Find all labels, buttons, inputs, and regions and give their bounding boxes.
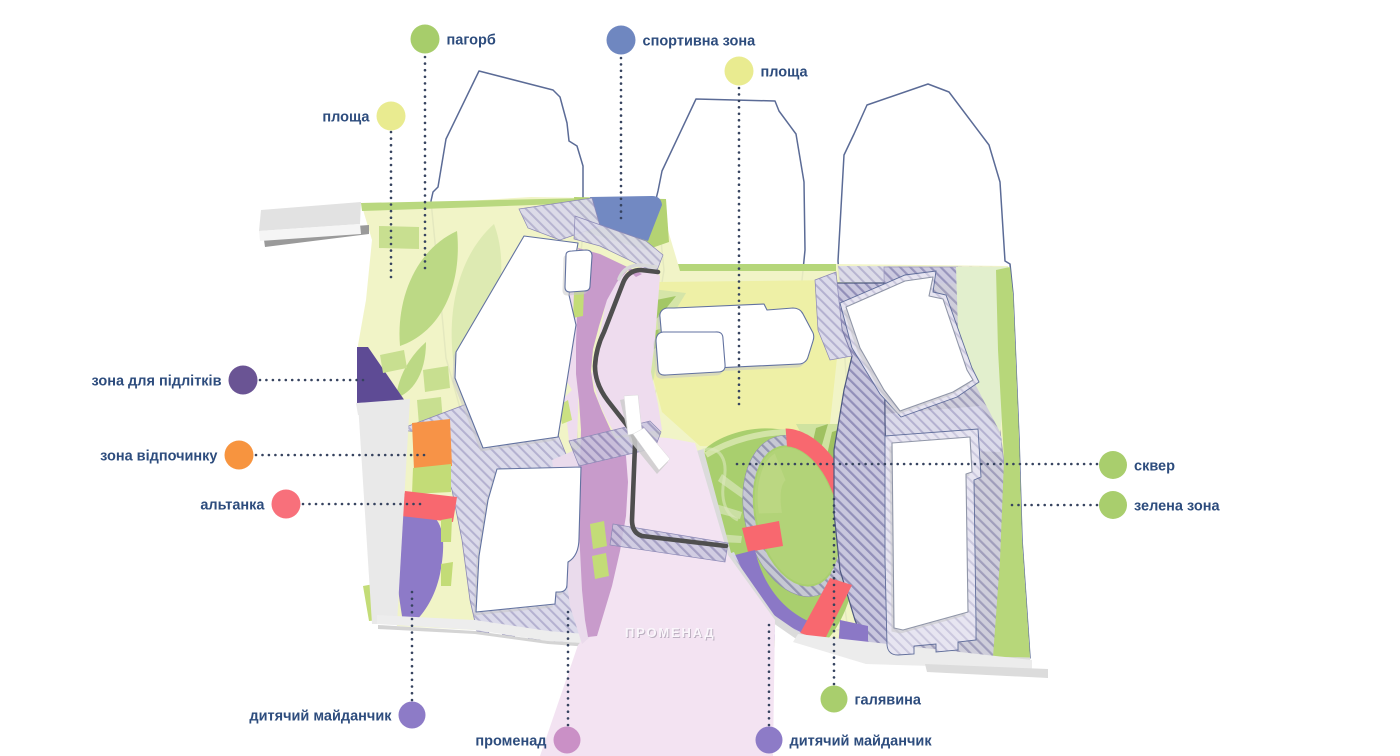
svg-text:альтанка: альтанка xyxy=(200,498,265,514)
svg-text:площа: площа xyxy=(761,65,809,81)
svg-text:зона відпочинку: зона відпочинку xyxy=(100,449,217,465)
svg-text:сквер: сквер xyxy=(1134,459,1175,475)
svg-text:спортивна зона: спортивна зона xyxy=(643,34,757,50)
svg-text:пагорб: пагорб xyxy=(447,33,496,49)
svg-text:зона для підлітків: зона для підлітків xyxy=(92,374,222,390)
svg-text:променад: променад xyxy=(475,734,546,750)
svg-text:площа: площа xyxy=(322,110,370,126)
svg-text:дитячий майданчик: дитячий майданчик xyxy=(790,734,933,750)
svg-text:зелена зона: зелена зона xyxy=(1134,499,1220,515)
svg-text:ПРОМЕНАД: ПРОМЕНАД xyxy=(625,625,715,640)
svg-text:галявина: галявина xyxy=(855,693,922,709)
svg-text:дитячий майданчик: дитячий майданчик xyxy=(249,709,392,725)
